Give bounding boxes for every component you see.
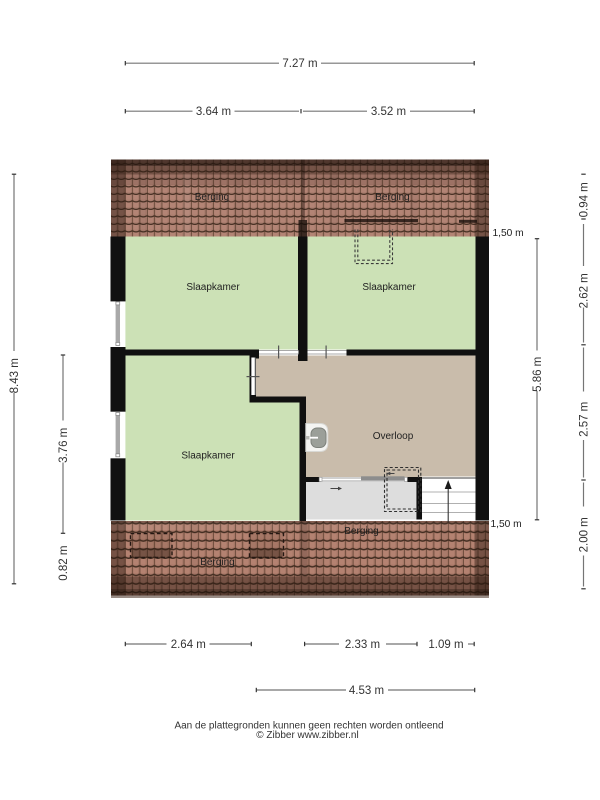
svg-text:© Zibber www.zibber.nl: © Zibber www.zibber.nl [256,730,358,741]
svg-text:Overloop: Overloop [373,431,414,442]
svg-text:Slaapkamer: Slaapkamer [181,451,235,462]
svg-text:0.82 m: 0.82 m [58,546,70,581]
svg-text:Slaapkamer: Slaapkamer [186,282,240,293]
svg-text:3.52 m: 3.52 m [371,106,406,118]
svg-text:4.53 m: 4.53 m [349,685,384,697]
svg-text:2.57 m: 2.57 m [578,402,590,437]
svg-text:3.76 m: 3.76 m [58,428,70,463]
svg-text:3.64 m: 3.64 m [196,106,231,118]
svg-text:8.43 m: 8.43 m [9,358,21,393]
svg-text:7.27 m: 7.27 m [282,58,317,70]
svg-text:2.33 m: 2.33 m [345,639,380,651]
svg-text:Berging: Berging [200,557,234,568]
svg-text:1,50 m: 1,50 m [493,228,524,239]
svg-text:2.62 m: 2.62 m [578,273,590,308]
svg-text:Berging: Berging [344,526,378,537]
svg-text:0.94 m: 0.94 m [578,182,590,217]
svg-text:Slaapkamer: Slaapkamer [362,282,416,293]
svg-text:1.09 m: 1.09 m [428,639,463,651]
svg-text:5.86 m: 5.86 m [532,357,544,392]
svg-text:2.64 m: 2.64 m [171,639,206,651]
svg-text:1,50 m: 1,50 m [491,519,522,530]
svg-text:2.00 m: 2.00 m [578,517,590,552]
svg-text:Berging: Berging [375,192,409,203]
svg-text:Berging: Berging [195,192,229,203]
